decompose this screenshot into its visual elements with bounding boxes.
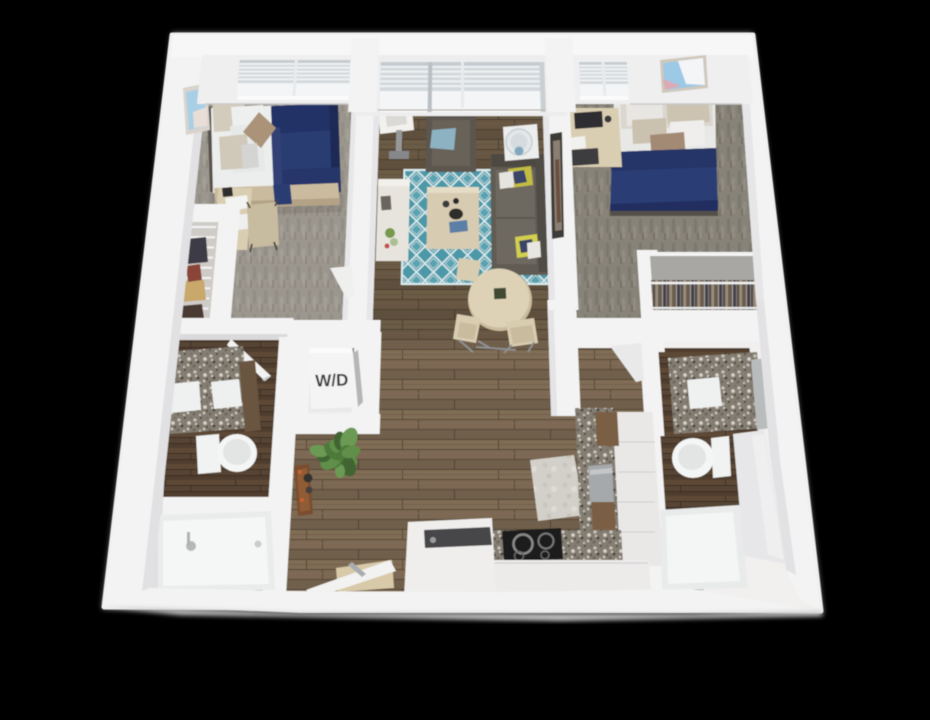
svg-text:W/D: W/D bbox=[315, 370, 349, 390]
